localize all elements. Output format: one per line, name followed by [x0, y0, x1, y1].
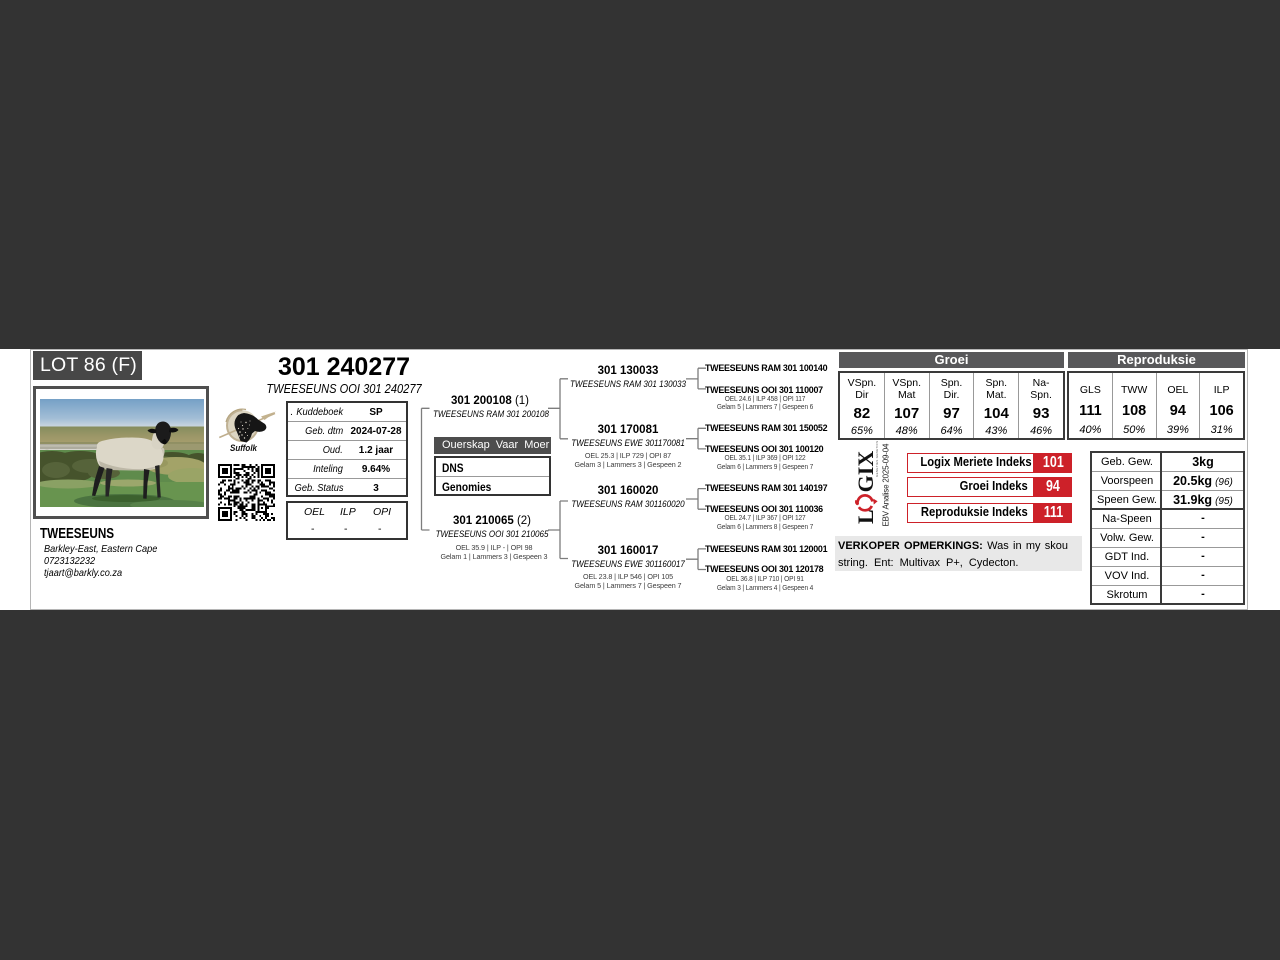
- svg-text:Suffolk: Suffolk: [230, 443, 258, 454]
